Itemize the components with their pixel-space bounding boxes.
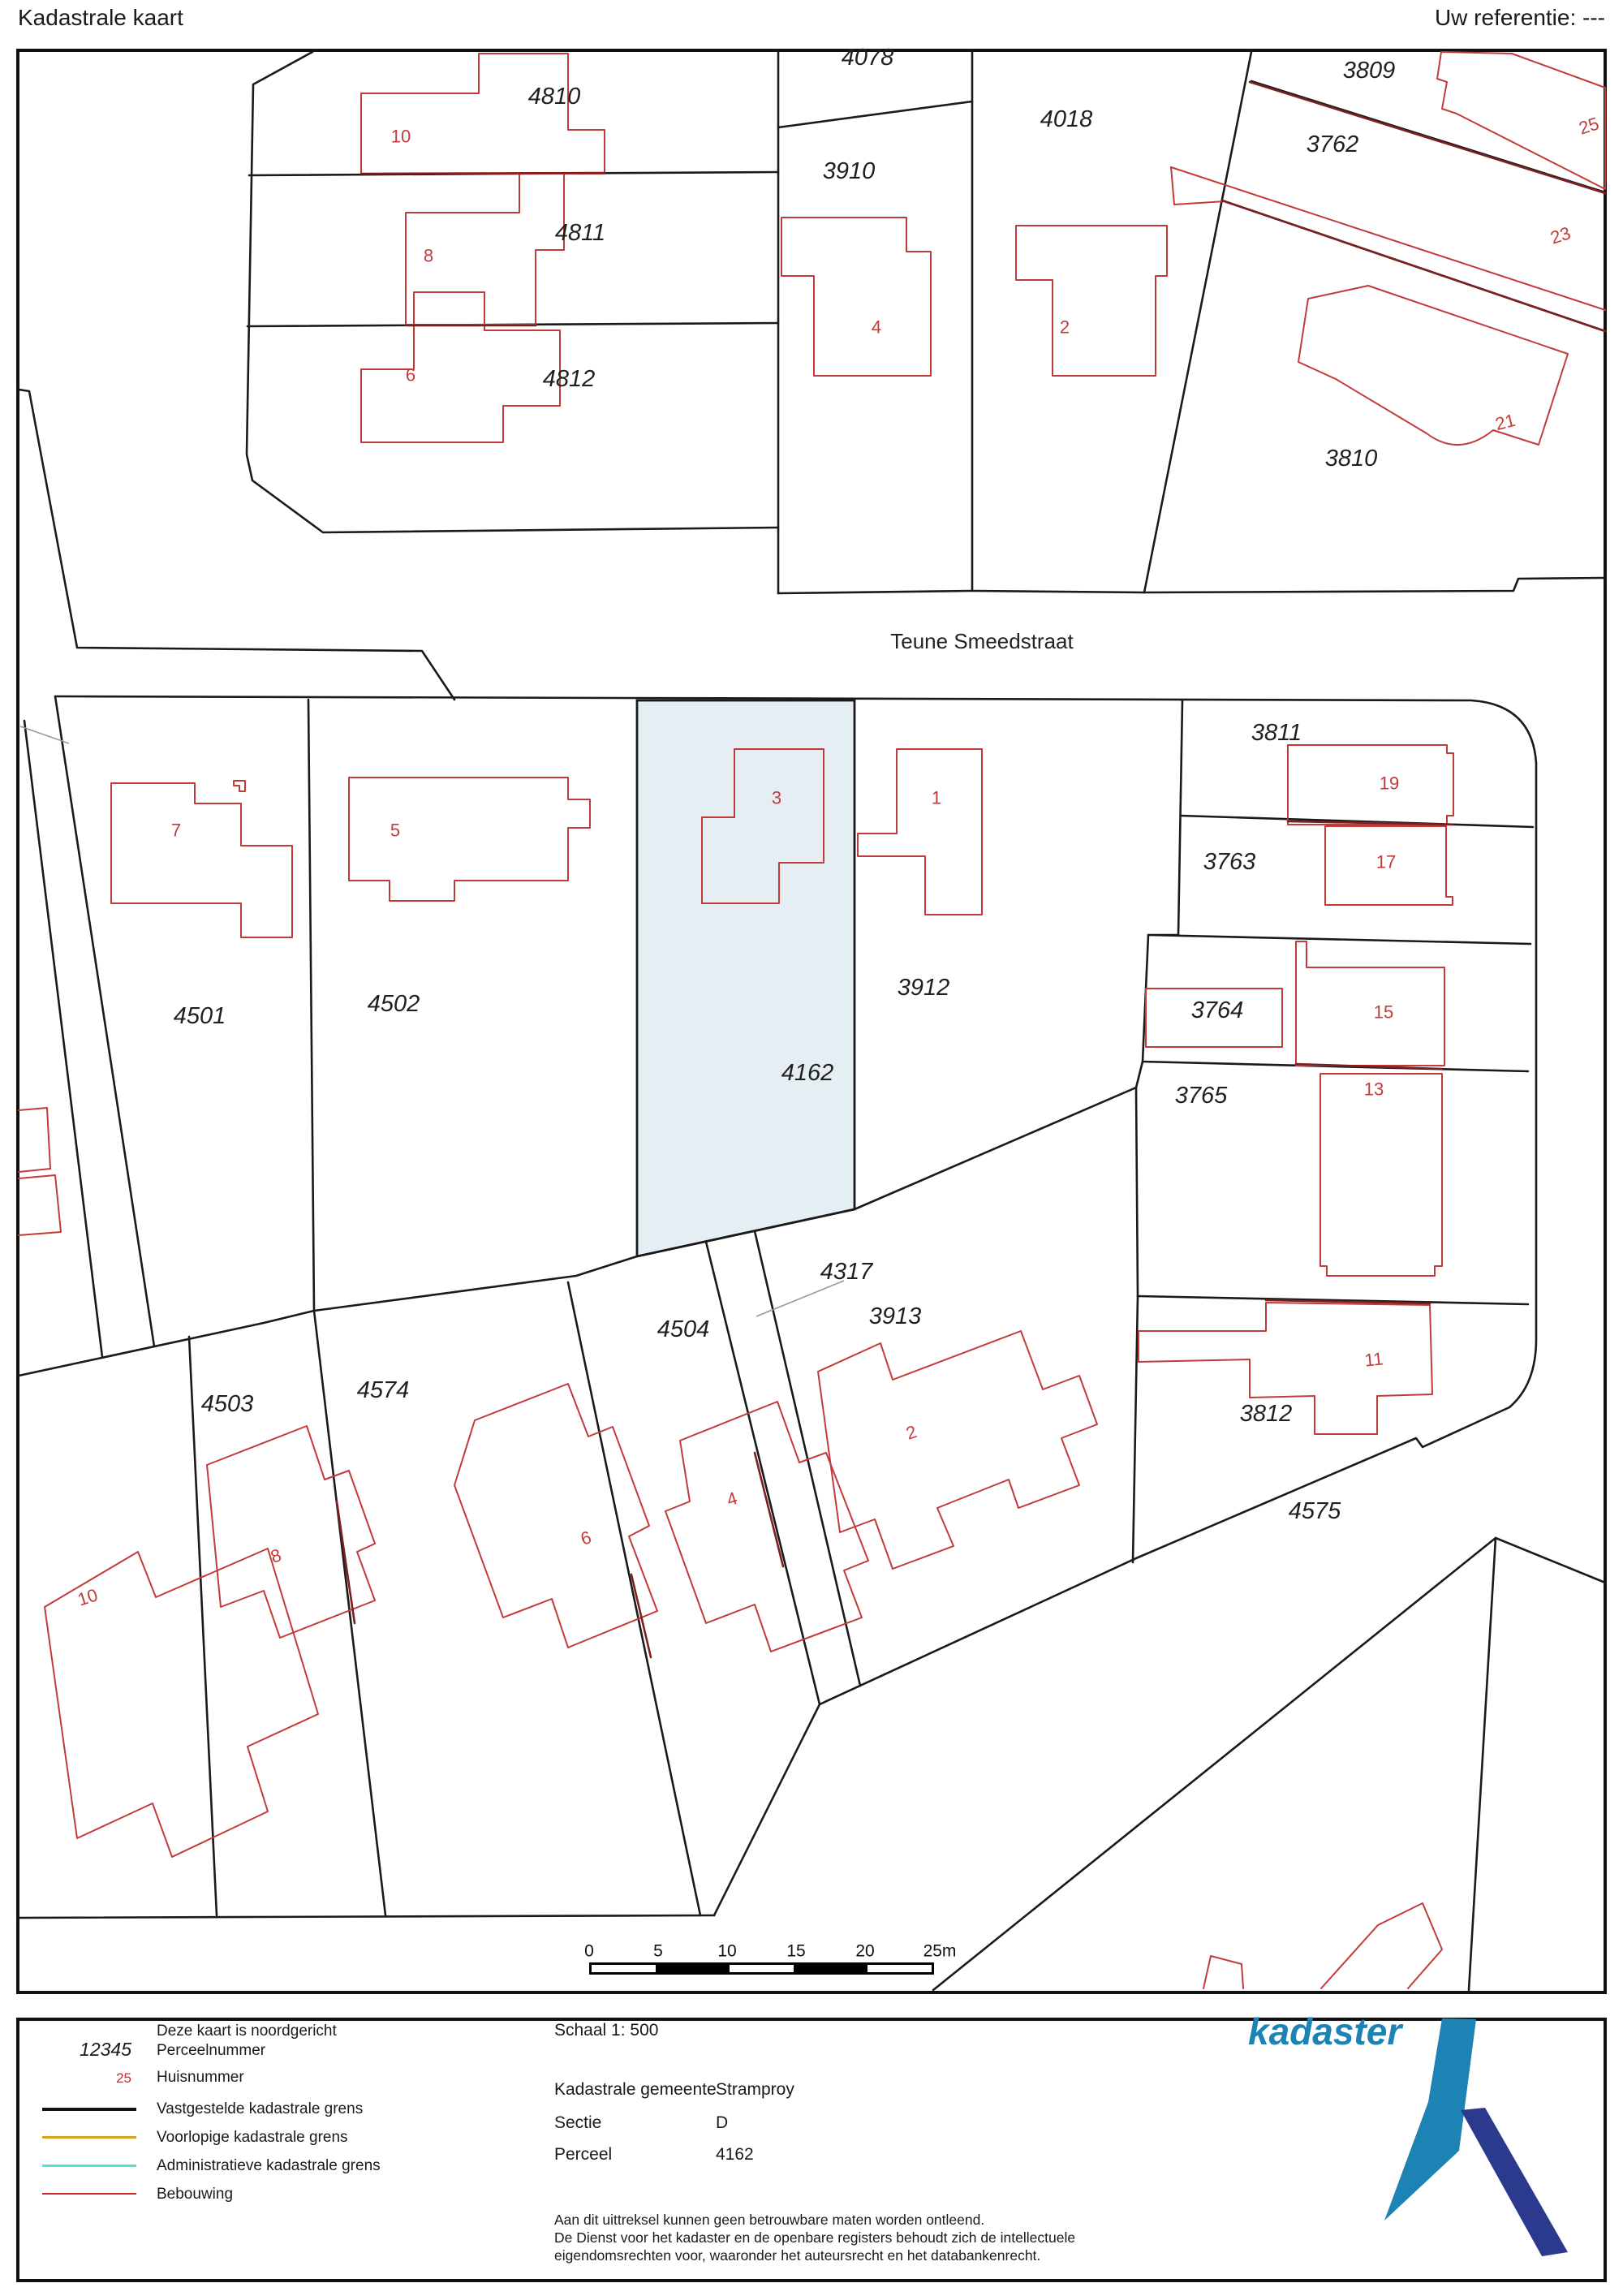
street-name-label: Teune Smeedstraat — [890, 629, 1074, 653]
parcel-label-3811: 3811 — [1251, 720, 1302, 746]
parcel-label-4162: 4162 — [781, 1060, 834, 1086]
street-name: Teune Smeedstraat — [890, 629, 1074, 653]
parcel-label-4812: 4812 — [543, 366, 596, 392]
house-number-17: 17 — [1376, 852, 1396, 872]
kadastrale-kaart-page: Kadastrale kaart Uw referentie: --- — [0, 0, 1623, 2296]
parcel-label-4018: 4018 — [1040, 106, 1093, 132]
scalebar-label-25m: 25m — [923, 1942, 957, 1961]
parcel-label-4501: 4501 — [174, 1003, 226, 1029]
parcel-label-3764: 3764 — [1191, 997, 1244, 1023]
parcel-label-3809: 3809 — [1343, 58, 1396, 84]
legend-line-administratief — [42, 2165, 136, 2167]
house-number-6: 6 — [406, 365, 415, 386]
disclaimer-line-1: Aan dit uittreksel kunnen geen betrouwba… — [554, 2212, 984, 2229]
parcel-label-4502: 4502 — [368, 991, 420, 1017]
legend-line-vastgesteld — [42, 2108, 136, 2111]
parcel-label-4575: 4575 — [1289, 1498, 1341, 1524]
disclaimer-line-3: eigendomsrechten voor, waaronder het aut… — [554, 2247, 1040, 2264]
scalebar-label-20: 20 — [855, 1942, 874, 1961]
house-number-4: 4 — [872, 317, 881, 338]
parcel-label-3812: 3812 — [1240, 1401, 1293, 1427]
cadastral-map: Teune Smeedstraat 4810481148124078391040… — [0, 0, 1623, 2296]
house-number-19: 19 — [1380, 773, 1399, 794]
parcel-label-4078: 4078 — [842, 45, 894, 71]
house-number-1: 1 — [932, 788, 941, 808]
parcel-label-4503: 4503 — [201, 1391, 254, 1417]
parcel-label-3762: 3762 — [1307, 131, 1359, 157]
logo-bar-shape — [1461, 2108, 1568, 2256]
scalebar-label-15: 15 — [786, 1942, 805, 1961]
info-sectie-value: D — [716, 2113, 728, 2133]
info-perceel-value: 4162 — [716, 2145, 754, 2165]
parcel-label-3913: 3913 — [869, 1303, 922, 1329]
info-perceel-label: Perceel — [554, 2145, 612, 2165]
parcel-label-4504: 4504 — [657, 1316, 710, 1342]
house-number-13: 13 — [1364, 1079, 1384, 1100]
scalebar-label-0: 0 — [584, 1942, 594, 1961]
scale-text: Schaal 1: 500 — [554, 2021, 658, 2040]
house-number-8: 8 — [424, 246, 433, 266]
info-gemeente-value: Stramproy — [716, 2080, 794, 2100]
legend-parcelnumber-sample: 12345 — [71, 2039, 131, 2061]
info-sectie-label: Sectie — [554, 2113, 601, 2133]
parcel-label-4811: 4811 — [555, 220, 605, 246]
parcel-label-3765: 3765 — [1175, 1083, 1228, 1109]
house-number-10: 10 — [391, 127, 411, 147]
legend-administratief-label: Administratieve kadastrale grens — [157, 2157, 381, 2175]
house-number-3: 3 — [772, 788, 781, 808]
parcel-label-3912: 3912 — [898, 975, 950, 1001]
logo-pen-shape — [1384, 2018, 1476, 2221]
scalebar-label-10: 10 — [717, 1942, 736, 1961]
house-number-11: 11 — [1363, 1348, 1384, 1370]
house-number-7: 7 — [171, 821, 181, 841]
house-number-5: 5 — [390, 821, 400, 841]
house-number-2: 2 — [1060, 317, 1070, 338]
info-gemeente-label: Kadastrale gemeente — [554, 2080, 717, 2100]
house-number-15: 15 — [1374, 1002, 1393, 1023]
parcel-label-4810: 4810 — [528, 84, 581, 110]
disclaimer-line-2: De Dienst voor het kadaster en de openba… — [554, 2229, 1075, 2246]
highlighted-parcel-4162 — [637, 700, 855, 1256]
legend-line-voorlopig — [42, 2136, 136, 2139]
parcel-label-3810: 3810 — [1325, 446, 1378, 472]
legend-vastgesteld-label: Vastgestelde kadastrale grens — [157, 2100, 363, 2118]
scale-bar — [589, 1962, 934, 1975]
legend-north-note: Deze kaart is noordgericht — [157, 2022, 337, 2040]
scalebar-label-5: 5 — [653, 1942, 663, 1961]
legend-voorlopig-label: Voorlopige kadastrale grens — [157, 2129, 348, 2147]
parcel-label-3910: 3910 — [823, 158, 876, 184]
legend-housenumber-sample: 25 — [81, 2070, 131, 2087]
parcel-label-3763: 3763 — [1203, 849, 1256, 875]
legend-housenumber-label: Huisnummer — [157, 2069, 244, 2087]
legend-line-bebouwing — [42, 2193, 136, 2195]
parcel-label-4317: 4317 — [820, 1259, 874, 1285]
legend-bebouwing-label: Bebouwing — [157, 2186, 233, 2203]
parcel-label-4574: 4574 — [357, 1377, 410, 1403]
kadaster-logo-mark — [1371, 2006, 1615, 2274]
legend-parcelnumber-label: Perceelnummer — [157, 2042, 265, 2060]
